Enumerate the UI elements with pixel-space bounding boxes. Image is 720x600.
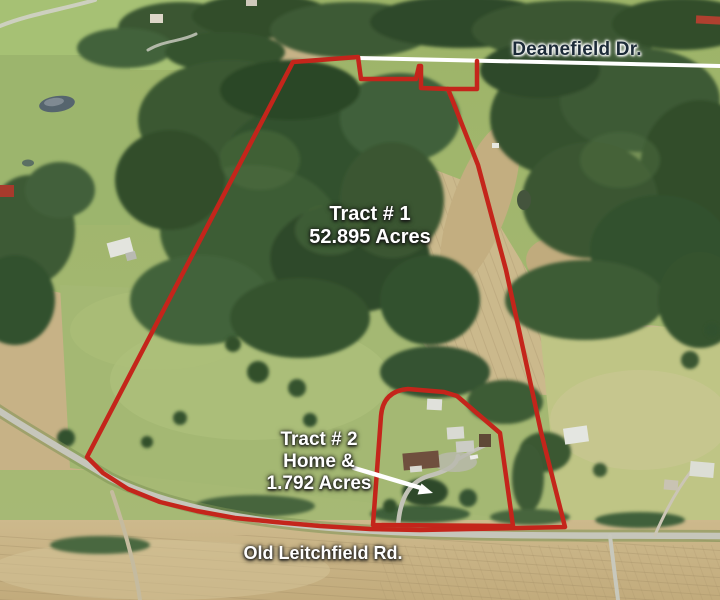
tract2-label: Tract # 2 Home & 1.792 Acres [267, 429, 372, 495]
road-label-old-leitchfield: Old Leitchfield Rd. [243, 543, 402, 565]
tract1-acreage: 52.895 Acres [309, 226, 431, 249]
arrow-to-home-icon [418, 484, 434, 495]
aerial-photo: Deanefield Dr. Tract # 1 52.895 Acres Tr… [0, 0, 720, 600]
tract2-name: Tract # 2 [267, 429, 372, 451]
annotation-overlay [0, 0, 720, 600]
tract2-home: Home & [267, 451, 372, 473]
tract2-acreage: 1.792 Acres [267, 473, 372, 495]
tract1-name: Tract # 1 [309, 203, 431, 226]
road-label-deanefield: Deanefield Dr. [512, 39, 642, 62]
tract2-boundary [373, 389, 513, 526]
tract1-label: Tract # 1 52.895 Acres [309, 203, 431, 249]
tract1-road-frontage-spur [448, 61, 477, 89]
